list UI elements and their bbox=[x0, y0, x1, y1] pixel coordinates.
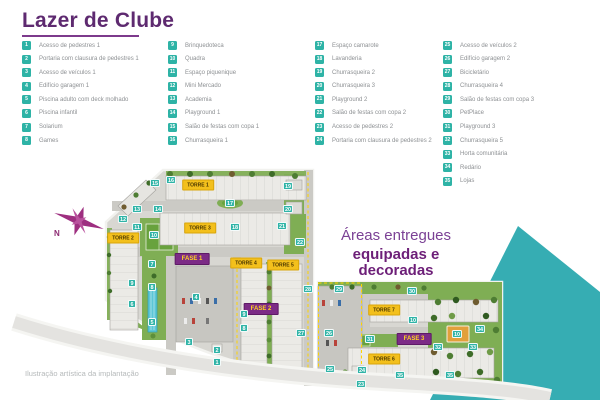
legend-item-26: 26Edifício garagem 2 bbox=[443, 55, 534, 64]
legend-item-21: 21Playground 2 bbox=[315, 95, 432, 104]
legend-label: Piscina adulto com deck molhado bbox=[39, 97, 128, 103]
legend-label: Bicicletário bbox=[460, 70, 489, 76]
legend-label: Playground 1 bbox=[185, 110, 220, 116]
legend-item-32: 32Churrasqueira 5 bbox=[443, 136, 534, 145]
legend-number-badge: 12 bbox=[168, 82, 177, 91]
legend-label: Acesso de veículos 1 bbox=[39, 70, 96, 76]
legend-number-badge: 29 bbox=[443, 95, 452, 104]
legend-item-20: 20Churrasqueira 3 bbox=[315, 82, 432, 91]
compass-rose: N bbox=[40, 186, 112, 258]
legend-label: Piscina infantil bbox=[39, 110, 77, 116]
legend-label: Acesso de pedestres 2 bbox=[332, 124, 393, 130]
compass-north-label: N bbox=[54, 229, 60, 238]
legend-label: Brinquedoteca bbox=[185, 43, 224, 49]
legend-item-3: 3Acesso de veículos 1 bbox=[22, 68, 139, 77]
legend-label: Acesso de pedestres 1 bbox=[39, 43, 100, 49]
legend-column-4: 25Acesso de veículos 226Edifício garagem… bbox=[443, 41, 534, 191]
legend-number-badge: 18 bbox=[315, 55, 324, 64]
legend-item-2: 2Portaria com clausura de pedestres 1 bbox=[22, 55, 139, 64]
legend-label: Quadra bbox=[185, 56, 205, 62]
legend-label: Academia bbox=[185, 97, 212, 103]
legend-label: Horta comunitária bbox=[460, 151, 507, 157]
page: Lazer de Clube 1Acesso de pedestres 12Po… bbox=[0, 0, 600, 400]
legend-item-12: 12Mini Mercado bbox=[168, 82, 259, 91]
legend-label: Playground 2 bbox=[332, 97, 367, 103]
legend-number-badge: 28 bbox=[443, 82, 452, 91]
tagline-line2: equipadas e decoradas bbox=[322, 247, 470, 280]
legend-number-badge: 16 bbox=[168, 136, 177, 145]
legend-label: Portaria com clausura de pedestres 2 bbox=[332, 138, 432, 144]
legend-column-2: 9Brinquedoteca10Quadra11Espaço piqueniqu… bbox=[168, 41, 259, 150]
legend-number-badge: 9 bbox=[168, 41, 177, 50]
legend-label: Edifício garagem 2 bbox=[460, 56, 510, 62]
legend-item-14: 14Playground 1 bbox=[168, 109, 259, 118]
tagline-line1: Áreas entregues bbox=[322, 228, 470, 245]
legend-number-badge: 14 bbox=[168, 109, 177, 118]
legend-number-badge: 21 bbox=[315, 95, 324, 104]
legend-number-badge: 33 bbox=[443, 150, 452, 159]
legend-item-10: 10Quadra bbox=[168, 55, 259, 64]
title-underline bbox=[22, 35, 139, 37]
legend-item-24: 24Portaria com clausura de pedestres 2 bbox=[315, 136, 432, 145]
legend-number-badge: 10 bbox=[168, 55, 177, 64]
legend-number-badge: 27 bbox=[443, 68, 452, 77]
legend-number-badge: 2 bbox=[22, 55, 31, 64]
legend-item-7: 7Solarium bbox=[22, 123, 139, 132]
legend-item-8: 8Games bbox=[22, 136, 139, 145]
legend-item-18: 18Lavanderia bbox=[315, 55, 432, 64]
legend-number-badge: 8 bbox=[22, 136, 31, 145]
legend-item-9: 9Brinquedoteca bbox=[168, 41, 259, 50]
legend-label: Espaço camarote bbox=[332, 43, 379, 49]
legend-label: Salão de festas com copa 2 bbox=[332, 110, 406, 116]
legend-label: Churrasqueira 4 bbox=[460, 83, 503, 89]
legend-number-badge: 34 bbox=[443, 163, 452, 172]
legend-label: Mini Mercado bbox=[185, 83, 221, 89]
legend-number-badge: 13 bbox=[168, 95, 177, 104]
legend-label: Portaria com clausura de pedestres 1 bbox=[39, 56, 139, 62]
legend-number-badge: 3 bbox=[22, 68, 31, 77]
legend-label: PetPlace bbox=[460, 110, 484, 116]
legend-label: Lavanderia bbox=[332, 56, 362, 62]
legend-number-badge: 17 bbox=[315, 41, 324, 50]
legend-label: Churrasqueira 1 bbox=[185, 138, 228, 144]
legend-label: Churrasqueira 5 bbox=[460, 138, 503, 144]
legend-column-3: 17Espaço camarote18Lavanderia19Churrasqu… bbox=[315, 41, 432, 150]
tagline: Áreas entregues equipadas e decoradas bbox=[322, 228, 470, 280]
legend-number-badge: 5 bbox=[22, 95, 31, 104]
legend-item-25: 25Acesso de veículos 2 bbox=[443, 41, 534, 50]
legend-number-badge: 15 bbox=[168, 123, 177, 132]
legend-item-31: 31Playground 3 bbox=[443, 123, 534, 132]
legend-label: Espaço piquenique bbox=[185, 70, 236, 76]
legend-number-badge: 6 bbox=[22, 109, 31, 118]
legend-item-11: 11Espaço piquenique bbox=[168, 68, 259, 77]
legend-label: Salão de festas com copa 1 bbox=[185, 124, 259, 130]
legend-number-badge: 19 bbox=[315, 68, 324, 77]
legend-label: Edifício garagem 1 bbox=[39, 83, 89, 89]
swimming-pool bbox=[148, 288, 157, 332]
legend-item-33: 33Horta comunitária bbox=[443, 150, 534, 159]
legend-number-badge: 25 bbox=[443, 41, 452, 50]
gatehouse-1 bbox=[212, 344, 222, 352]
legend-label: Playground 3 bbox=[460, 124, 495, 130]
legend-label: Churrasqueira 3 bbox=[332, 83, 375, 89]
legend-item-1: 1Acesso de pedestres 1 bbox=[22, 41, 139, 50]
legend-item-5: 5Piscina adulto com deck molhado bbox=[22, 95, 139, 104]
legend-item-4: 4Edifício garagem 1 bbox=[22, 82, 139, 91]
legend-label: Games bbox=[39, 138, 58, 144]
legend-number-badge: 32 bbox=[443, 136, 452, 145]
legend-item-22: 22Salão de festas com copa 2 bbox=[315, 109, 432, 118]
legend-number-badge: 11 bbox=[168, 68, 177, 77]
legend-item-19: 19Churrasqueira 2 bbox=[315, 68, 432, 77]
legend-item-17: 17Espaço camarote bbox=[315, 41, 432, 50]
legend-number-badge: 31 bbox=[443, 123, 452, 132]
legend-number-badge: 7 bbox=[22, 123, 31, 132]
legend-label: Churrasqueira 2 bbox=[332, 70, 375, 76]
legend-item-27: 27Bicicletário bbox=[443, 68, 534, 77]
legend-label: Lojas bbox=[460, 178, 474, 184]
legend-number-badge: 1 bbox=[22, 41, 31, 50]
legend-number-badge: 24 bbox=[315, 136, 324, 145]
beach-court bbox=[447, 326, 469, 342]
legend-item-23: 23Acesso de pedestres 2 bbox=[315, 123, 432, 132]
illustration-caption: Ilustração artística da implantação bbox=[25, 369, 139, 378]
legend-item-29: 29Salão de festas com copa 3 bbox=[443, 95, 534, 104]
legend-number-badge: 26 bbox=[443, 55, 452, 64]
legend-label: Redário bbox=[460, 165, 481, 171]
legend-item-6: 6Piscina infantil bbox=[22, 109, 139, 118]
legend-label: Acesso de veículos 2 bbox=[460, 43, 517, 49]
legend-number-badge: 20 bbox=[315, 82, 324, 91]
legend-number-badge: 23 bbox=[315, 123, 324, 132]
legend-column-1: 1Acesso de pedestres 12Portaria com clau… bbox=[22, 41, 139, 150]
legend-item-34: 34Redário bbox=[443, 163, 534, 172]
legend-number-badge: 35 bbox=[443, 177, 452, 186]
legend-label: Solarium bbox=[39, 124, 63, 130]
compass-star-diagonal bbox=[65, 205, 93, 238]
legend-item-15: 15Salão de festas com copa 1 bbox=[168, 123, 259, 132]
legend-number-badge: 30 bbox=[443, 109, 452, 118]
page-title: Lazer de Clube bbox=[22, 9, 174, 33]
legend-item-35: 35Lojas bbox=[443, 177, 534, 186]
legend-label: Salão de festas com copa 3 bbox=[460, 97, 534, 103]
legend-item-16: 16Churrasqueira 1 bbox=[168, 136, 259, 145]
legend-item-30: 30PetPlace bbox=[443, 109, 534, 118]
legend-number-badge: 4 bbox=[22, 82, 31, 91]
legend-item-28: 28Churrasqueira 4 bbox=[443, 82, 534, 91]
legend-item-13: 13Academia bbox=[168, 95, 259, 104]
legend-number-badge: 22 bbox=[315, 109, 324, 118]
